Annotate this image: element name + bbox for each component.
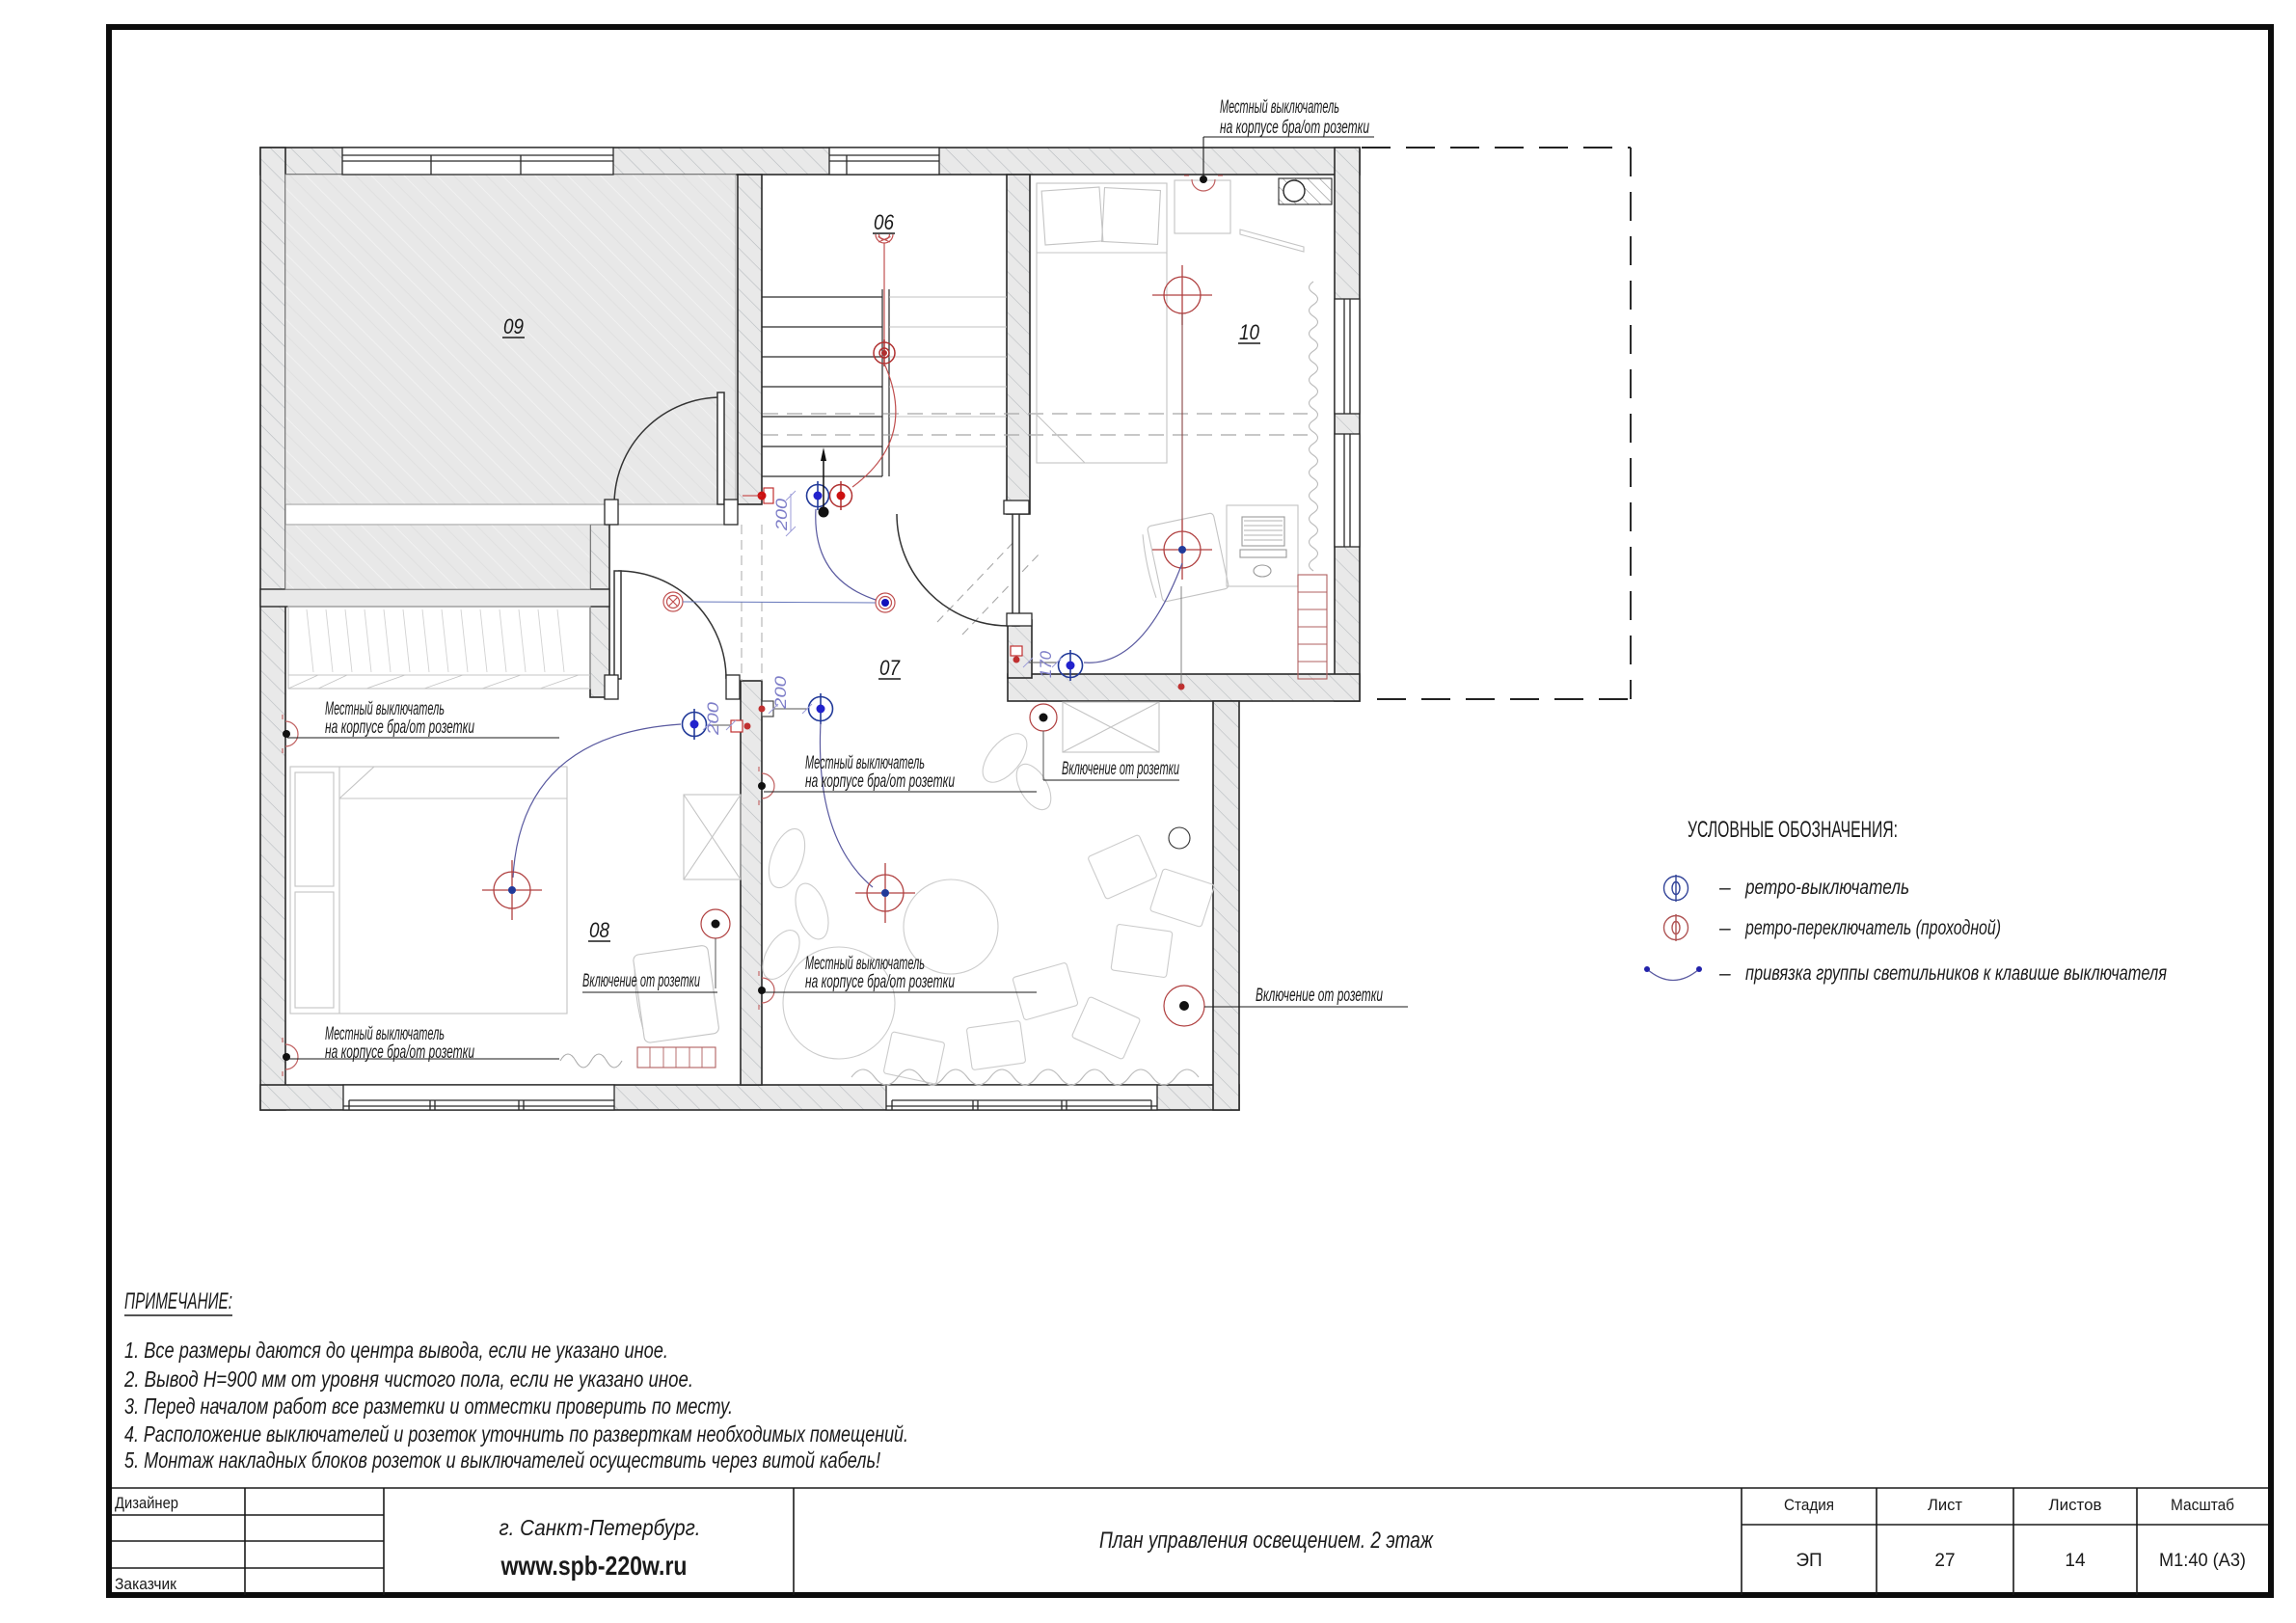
- svg-text:200: 200: [704, 701, 722, 736]
- svg-text:Масштаб: Масштаб: [2171, 1496, 2234, 1514]
- svg-text:Включение от розетки: Включение от розетки: [1062, 759, 1179, 779]
- svg-text:привязка группы светильников к: привязка группы светильников к клавише в…: [1745, 962, 2167, 985]
- svg-text:на корпусе бра/от розетки: на корпусе бра/от розетки: [325, 1042, 474, 1063]
- svg-text:ПРИМЕЧАНИЕ:: ПРИМЕЧАНИЕ:: [124, 1288, 232, 1314]
- svg-text:Листов: Листов: [2049, 1496, 2102, 1514]
- svg-text:ретро-выключатель: ретро-выключатель: [1744, 877, 1909, 899]
- svg-text:14: 14: [2065, 1551, 2086, 1571]
- svg-text:ретро-переключатель (проходной: ретро-переключатель (проходной): [1744, 917, 2001, 939]
- svg-text:–: –: [1718, 962, 1731, 985]
- svg-text:09: 09: [503, 314, 524, 338]
- svg-text:Местный выключатель: Местный выключатель: [805, 954, 925, 974]
- svg-text:200: 200: [772, 498, 791, 531]
- svg-text:Местный выключатель: Местный выключатель: [805, 753, 925, 773]
- svg-text:Включение от розетки: Включение от розетки: [1256, 986, 1383, 1006]
- svg-text:на корпусе бра/от розетки: на корпусе бра/от розетки: [325, 717, 474, 738]
- svg-text:3. Перед началом работ все раз: 3. Перед началом работ все разметки и от…: [124, 1393, 733, 1419]
- svg-text:Местный выключатель: Местный выключатель: [325, 1024, 445, 1044]
- svg-text:Заказчик: Заказчик: [115, 1575, 177, 1593]
- svg-text:–: –: [1718, 917, 1731, 939]
- svg-text:Местный выключатель: Местный выключатель: [325, 699, 445, 719]
- svg-text:на корпусе бра/от розетки: на корпусе бра/от розетки: [1220, 118, 1369, 138]
- svg-text:УСЛОВНЫЕ ОБОЗНАЧЕНИЯ:: УСЛОВНЫЕ ОБОЗНАЧЕНИЯ:: [1688, 817, 1898, 843]
- svg-text:170: 170: [1037, 650, 1055, 678]
- svg-text:–: –: [1718, 877, 1731, 899]
- svg-text:07: 07: [879, 656, 901, 680]
- svg-text:5. Монтаж накладных блоков роз: 5. Монтаж накладных блоков розеток и вык…: [124, 1447, 880, 1473]
- svg-text:08: 08: [589, 918, 610, 942]
- svg-text:Лист: Лист: [1928, 1496, 1962, 1514]
- svg-text:06: 06: [874, 210, 895, 234]
- svg-text:ЭП: ЭП: [1796, 1551, 1822, 1571]
- svg-text:200: 200: [771, 675, 790, 710]
- svg-text:www.spb-220w.ru: www.spb-220w.ru: [500, 1551, 688, 1581]
- svg-text:г. Санкт-Петербург.: г. Санкт-Петербург.: [500, 1515, 701, 1540]
- svg-text:на корпусе бра/от розетки: на корпусе бра/от розетки: [805, 771, 955, 792]
- svg-text:Дизайнер: Дизайнер: [115, 1494, 178, 1512]
- svg-text:1. Все размеры даются до центр: 1. Все размеры даются до центра вывода, …: [124, 1338, 668, 1363]
- svg-text:4. Расположение выключателей и: 4. Расположение выключателей и розеток у…: [124, 1421, 908, 1447]
- svg-text:на корпусе бра/от розетки: на корпусе бра/от розетки: [805, 972, 955, 992]
- svg-text:М1:40 (А3): М1:40 (А3): [2159, 1551, 2246, 1571]
- svg-text:Стадия: Стадия: [1784, 1496, 1834, 1514]
- svg-text:10: 10: [1239, 320, 1260, 344]
- svg-text:2. Вывод Н=900 мм от уровня ч: 2. Вывод Н=900 мм от уровня чистого пола…: [123, 1366, 693, 1392]
- svg-text:План управления освещением. 2: План управления освещением. 2 этаж: [1099, 1528, 1434, 1554]
- svg-text:Местный выключатель: Местный выключатель: [1220, 97, 1339, 118]
- svg-text:27: 27: [1934, 1551, 1955, 1571]
- svg-text:Включение от розетки: Включение от розетки: [582, 971, 700, 991]
